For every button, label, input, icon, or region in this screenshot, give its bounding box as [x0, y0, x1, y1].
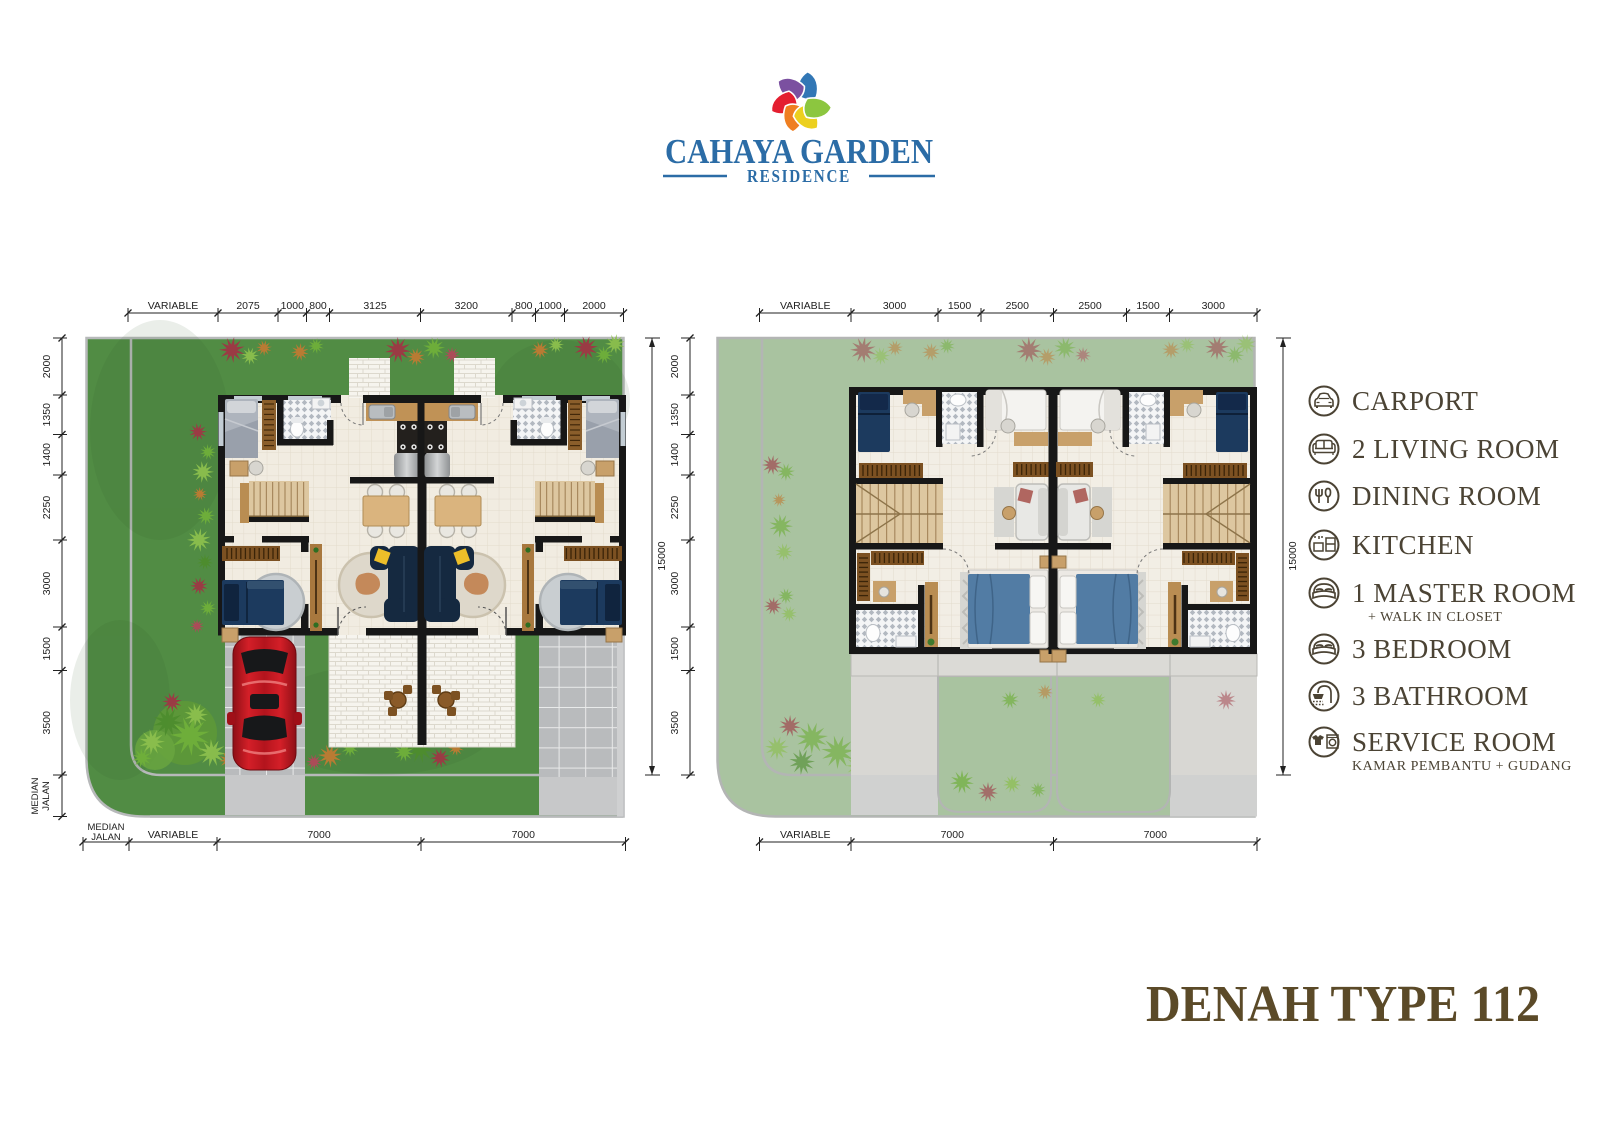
svg-text:2000: 2000 [582, 300, 606, 312]
svg-text:MEDIAN: MEDIAN [30, 777, 41, 814]
svg-text:KAMAR PEMBANTU + GUDANG: KAMAR PEMBANTU + GUDANG [1352, 759, 1572, 774]
svg-text:3000: 3000 [669, 572, 681, 596]
svg-text:15000: 15000 [1287, 541, 1299, 570]
svg-text:3 BEDROOM: 3 BEDROOM [1352, 634, 1512, 664]
svg-text:2 LIVING ROOM: 2 LIVING ROOM [1352, 434, 1559, 464]
svg-text:7000: 7000 [307, 829, 331, 841]
svg-text:DINING ROOM: DINING ROOM [1352, 481, 1541, 511]
svg-text:3 BATHROOM: 3 BATHROOM [1352, 681, 1529, 711]
svg-text:SERVICE ROOM: SERVICE ROOM [1352, 727, 1556, 757]
svg-text:1 MASTER ROOM: 1 MASTER ROOM [1352, 578, 1576, 608]
svg-text:7000: 7000 [1144, 829, 1168, 841]
svg-text:JALAN: JALAN [41, 781, 52, 811]
svg-text:1500: 1500 [948, 300, 972, 312]
svg-text:+ WALK IN CLOSET: + WALK IN CLOSET [1368, 610, 1502, 625]
svg-text:1500: 1500 [669, 637, 681, 661]
svg-text:800: 800 [515, 300, 533, 312]
svg-text:2500: 2500 [1078, 300, 1102, 312]
svg-text:800: 800 [309, 300, 327, 312]
svg-text:3000: 3000 [41, 572, 53, 596]
svg-text:DENAH TYPE 112: DENAH TYPE 112 [1146, 976, 1540, 1033]
svg-text:1000: 1000 [538, 300, 562, 312]
svg-text:2500: 2500 [1006, 300, 1030, 312]
svg-text:1350: 1350 [41, 403, 53, 427]
svg-text:1500: 1500 [41, 637, 53, 661]
svg-text:2000: 2000 [41, 355, 53, 379]
svg-text:1350: 1350 [669, 403, 681, 427]
svg-text:7000: 7000 [941, 829, 965, 841]
svg-text:1400: 1400 [669, 443, 681, 467]
svg-text:15000: 15000 [656, 541, 668, 570]
svg-text:3500: 3500 [669, 711, 681, 735]
svg-text:3000: 3000 [883, 300, 907, 312]
svg-text:CARPORT: CARPORT [1352, 386, 1478, 416]
svg-text:VARIABLE: VARIABLE [148, 829, 199, 841]
svg-text:VARIABLE: VARIABLE [780, 300, 831, 312]
svg-text:3125: 3125 [363, 300, 387, 312]
svg-text:JALAN: JALAN [91, 832, 121, 843]
svg-text:VARIABLE: VARIABLE [780, 829, 831, 841]
svg-text:VARIABLE: VARIABLE [148, 300, 199, 312]
svg-text:1000: 1000 [281, 300, 305, 312]
svg-text:2250: 2250 [41, 496, 53, 520]
svg-text:3200: 3200 [455, 300, 479, 312]
svg-text:RESIDENCE: RESIDENCE [747, 166, 851, 186]
svg-text:2075: 2075 [236, 300, 260, 312]
svg-text:KITCHEN: KITCHEN [1352, 530, 1474, 560]
svg-text:2000: 2000 [669, 355, 681, 379]
svg-text:3500: 3500 [41, 711, 53, 735]
svg-text:2250: 2250 [669, 496, 681, 520]
svg-text:7000: 7000 [512, 829, 536, 841]
svg-text:3000: 3000 [1202, 300, 1226, 312]
svg-text:1400: 1400 [41, 443, 53, 467]
svg-text:1500: 1500 [1136, 300, 1160, 312]
